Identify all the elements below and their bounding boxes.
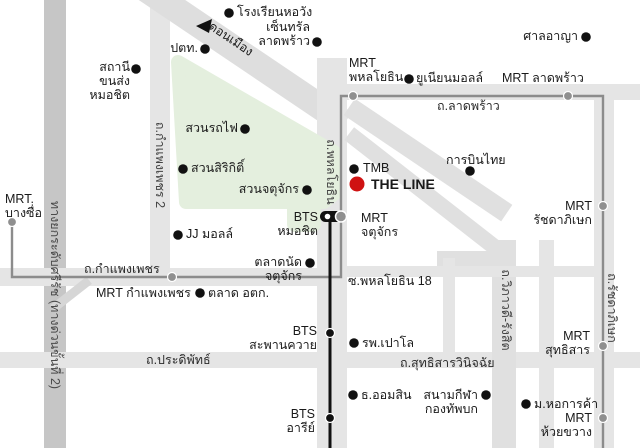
mrt-station-kamphaengphet-dot	[168, 273, 177, 282]
bts-station-saphankhwai-dot	[326, 329, 335, 338]
the-line-marker	[350, 177, 365, 192]
dot-suan-sirikit	[178, 164, 188, 174]
label-bts-mochit: BTS หมอชิต	[276, 210, 318, 238]
label-mrt-phahonyothin: MRT พหลโยธิน	[349, 56, 419, 84]
dot-central-ladprao	[312, 37, 322, 47]
label-paolo-hospital: รพ.เปาโล	[362, 336, 422, 350]
label-chatuchak-market: ตลาดนัดจตุจักร	[220, 255, 302, 283]
mrt-station-huaikhwang-dot	[599, 414, 608, 423]
label-horwang-school: โรงเรียนหอวัง	[237, 5, 347, 19]
mrt-station-ladprao-dot	[564, 92, 573, 101]
label-mrt-chatuchak: MRT จตุจักร	[361, 211, 416, 239]
dot-jj-mall	[173, 230, 183, 240]
label-union-mall: ยูเนียนมอลล์	[416, 71, 496, 85]
dot-paolo-hospital	[349, 338, 359, 348]
dot-horwang-school	[224, 8, 234, 18]
label-army-stadium: สนามกีฬา กองทัพบก	[418, 388, 478, 416]
label-ptt: ปตท.	[168, 41, 198, 55]
label-road-vibhavadi: ถ.วิภาวดี-รังสิต	[499, 250, 513, 370]
dot-tmb-bank	[349, 164, 359, 174]
dot-suan-rotfai	[240, 124, 250, 134]
label-utcc-university: ม.หอการค้า	[534, 397, 604, 411]
label-bts-saphankhwai: BTS สะพานควาย	[245, 324, 317, 352]
dot-army-stadium	[481, 390, 491, 400]
label-mrt-bangsue: MRT. บางซื่อ	[5, 192, 53, 220]
label-mrt-sutthisan: MRT สุทธิสาร	[533, 329, 590, 357]
dot-criminal-court	[581, 32, 591, 42]
mrt-station-phahonyothin-dot	[349, 92, 358, 101]
label-road-ratchadaphisek: ถ.รัชดาภิเษก	[605, 253, 619, 363]
dot-or-tor-kor-market	[195, 288, 205, 298]
dot-mochit-bus-terminal	[131, 64, 141, 74]
label-criminal-court: ศาลอาญา	[518, 29, 578, 43]
label-mrt-huaikhwang: MRT ห้วยขวาง	[530, 411, 592, 439]
label-jj-mall: JJ มอลล์	[186, 227, 246, 241]
label-suan-rotfai: สวนรถไฟ	[181, 121, 238, 135]
label-suan-sirikit: สวนสิริกิติ์	[191, 161, 261, 175]
label-road-ladprao: ถ.ลาดพร้าว	[437, 99, 507, 113]
label-mrt-kamphaengphet: MRT กำแพงเพชร	[96, 286, 191, 300]
mrt-station-ratchadaphisek-dot	[599, 202, 608, 211]
dot-suan-chatuchak	[302, 185, 312, 195]
label-the-line: THE LINE	[371, 176, 446, 192]
label-suan-chatuchak: สวนจตุจักร	[232, 182, 299, 196]
label-tmb-bank: TMB	[363, 161, 403, 175]
dot-utcc-university	[521, 399, 531, 409]
label-soi-phahonyothin18: ซ.พหลโยธิน 18	[348, 274, 438, 288]
dot-chatuchak-market	[305, 258, 315, 268]
label-thai-airways: การบินไทย	[446, 153, 516, 167]
bts-station-ari-dot	[326, 414, 335, 423]
dot-ptt	[200, 44, 210, 54]
label-road-pradipat: ถ.ประดิพัทธ์	[146, 353, 221, 367]
dot-thai-airways	[465, 166, 475, 176]
label-mrt-ladprao: MRT ลาดพร้าว	[502, 71, 592, 85]
label-road-sutthisan: ถ.สุทธิสารวินิจฉัย	[400, 356, 500, 370]
label-bts-ari: BTS อารีย์	[273, 407, 315, 435]
label-or-tor-kor-market: ตลาด อตก.	[208, 286, 278, 300]
label-central-ladprao: เซ็นทรัล ลาดพร้าว	[250, 20, 310, 48]
label-road-kamphaengphet: ถ.กำแพงเพชร	[84, 262, 164, 276]
label-mrt-ratchadaphisek: MRT รัชดาภิเษก	[520, 199, 592, 227]
label-aomsin-bank: ธ.ออมสิน	[361, 388, 421, 402]
label-road-phahonyothin: ถ.พหลโยธิน	[324, 122, 338, 222]
dot-aomsin-bank	[348, 390, 358, 400]
bangkok-location-map: โรงเรียนหอวังเซ็นทรัล ลาดพร้าวปตท.ดอนเมื…	[0, 0, 640, 448]
label-expressway-sirat: ทางยกระดับศรีรัช (ทางด่วนขั้นที่ 2)	[48, 175, 62, 415]
label-mochit-bus-terminal: สถานีขนส่ง หมอชิต	[73, 60, 130, 102]
label-road-kamphaengphet2: ถ.กำแพงเพชร 2	[153, 105, 167, 225]
